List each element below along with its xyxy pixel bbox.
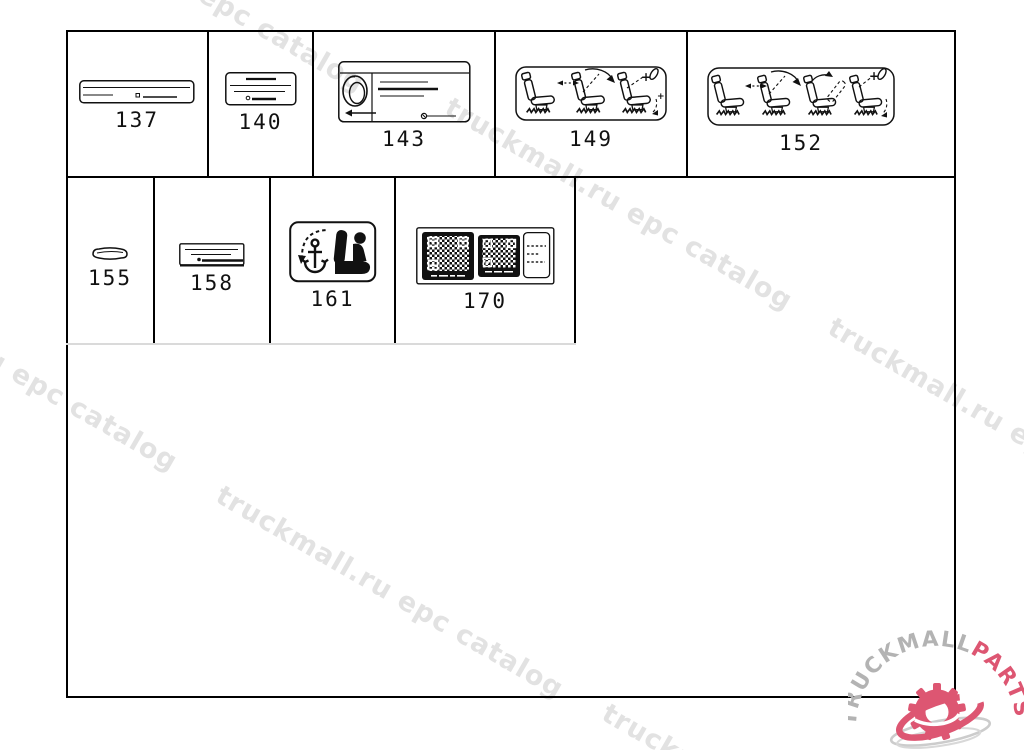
part-cell-161[interactable]: 161	[270, 178, 395, 311]
part-cell-170[interactable]: 170	[395, 178, 575, 313]
child-seat-anchor-label-icon	[289, 221, 377, 283]
part-number: 152	[779, 131, 823, 155]
anchor-icon	[302, 240, 328, 272]
gear-logo-icon	[908, 683, 967, 741]
svg-text:TRUCKMALLPARTS: TRUCKMALLPARTS	[848, 627, 1024, 727]
wide-strip-label-icon	[79, 80, 195, 104]
seat-adjust-3-label-icon: + +	[515, 66, 667, 123]
qr-code-icon	[422, 232, 474, 280]
part-cell-143[interactable]: 143	[313, 30, 495, 151]
text-label-icon	[179, 243, 245, 267]
catalog-page: truckmall.ru epc catalog truckmall.ru ep…	[0, 0, 1024, 750]
left-arrow-icon	[345, 110, 352, 117]
part-cell-140[interactable]: 140	[208, 30, 313, 134]
qr-label-icon	[416, 227, 555, 285]
part-number: 158	[190, 271, 234, 295]
brand-name-accent: PARTS	[967, 637, 1024, 720]
text-label-icon	[225, 72, 297, 106]
qr-code-icon	[478, 235, 520, 277]
ring-diagram-label-icon	[338, 61, 471, 123]
info-panel	[523, 233, 549, 278]
part-cell-149[interactable]: + + 149	[495, 30, 687, 151]
child-seat-icon	[333, 230, 370, 274]
brand-logo: TRUCKMALLPARTS	[848, 626, 1024, 750]
part-number: 143	[382, 127, 426, 151]
part-cell-152[interactable]: + 152	[687, 30, 956, 155]
part-cell-158[interactable]: 158	[154, 178, 270, 295]
part-cell-137[interactable]: 137	[66, 30, 208, 132]
curved-strip-label-icon	[89, 244, 131, 262]
part-number: 161	[311, 287, 355, 311]
svg-text:+: +	[657, 92, 665, 102]
part-number: 140	[239, 110, 283, 134]
seat-adjust-4-label-icon: +	[707, 67, 895, 127]
part-number: 137	[115, 108, 159, 132]
part-cell-155[interactable]: 155	[66, 178, 154, 290]
part-number: 155	[88, 266, 132, 290]
part-number: 149	[569, 127, 613, 151]
grid-line-row2-bottom	[66, 343, 576, 345]
part-number: 170	[463, 289, 507, 313]
